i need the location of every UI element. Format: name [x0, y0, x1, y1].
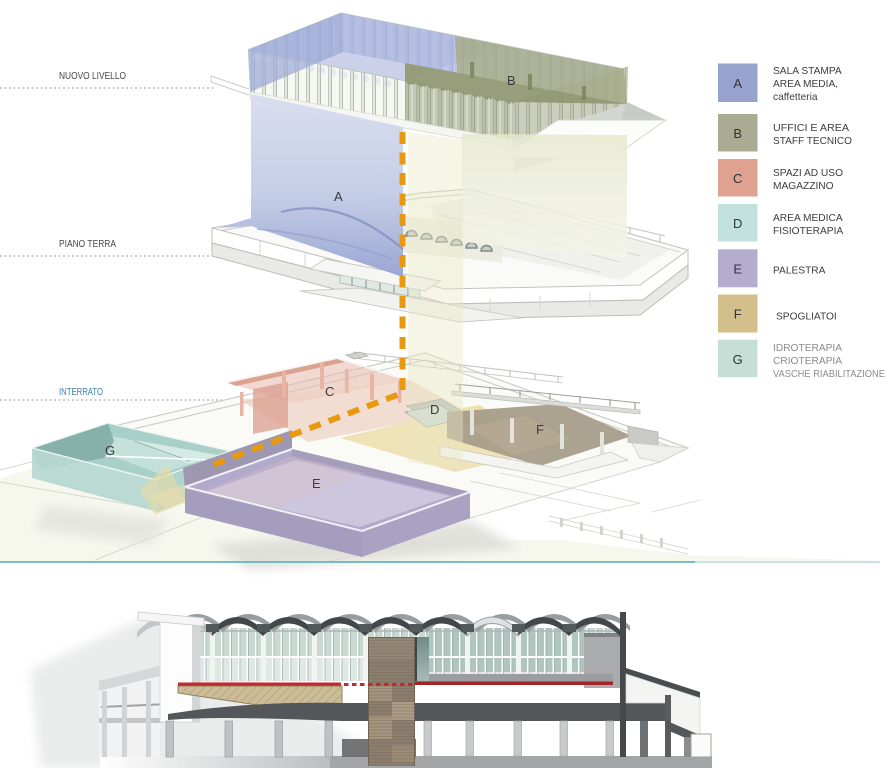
- svg-text:C: C: [325, 384, 334, 399]
- svg-text:D: D: [430, 402, 439, 417]
- svg-text:SPOGLIATOI: SPOGLIATOI: [776, 312, 837, 323]
- svg-text:E: E: [312, 476, 321, 491]
- svg-text:VASCHE RIABILITAZIONE: VASCHE RIABILITAZIONE: [773, 369, 885, 380]
- svg-text:AREA MEDICA: AREA MEDICA: [773, 213, 843, 224]
- svg-text:D: D: [733, 216, 742, 231]
- svg-text:PALESTRA: PALESTRA: [773, 266, 826, 277]
- svg-text:CRIOTERAPIA: CRIOTERAPIA: [773, 356, 842, 367]
- svg-text:AREA MEDIA,: AREA MEDIA,: [773, 79, 838, 90]
- svg-text:STAFF TECNICO: STAFF TECNICO: [773, 136, 852, 147]
- svg-text:F: F: [734, 307, 742, 322]
- svg-text:NUOVO LIVELLO: NUOVO LIVELLO: [59, 71, 126, 82]
- svg-text:B: B: [507, 73, 516, 88]
- svg-text:B: B: [733, 126, 742, 141]
- svg-text:F: F: [536, 422, 544, 437]
- svg-text:G: G: [733, 352, 743, 367]
- svg-text:PIANO TERRA: PIANO TERRA: [59, 239, 116, 250]
- svg-text:INTERRATO: INTERRATO: [59, 387, 103, 398]
- svg-text:C: C: [733, 171, 742, 186]
- svg-text:UFFICI E AREA: UFFICI E AREA: [773, 123, 849, 134]
- svg-text:A: A: [733, 76, 742, 91]
- svg-text:caffetteria: caffetteria: [773, 92, 818, 103]
- svg-text:SALA STAMPA: SALA STAMPA: [773, 66, 842, 77]
- svg-text:SPAZI AD USO: SPAZI AD USO: [773, 168, 843, 179]
- svg-text:G: G: [105, 443, 115, 458]
- svg-text:MAGAZZINO: MAGAZZINO: [773, 181, 834, 192]
- svg-text:FISIOTERAPIA: FISIOTERAPIA: [773, 226, 843, 237]
- svg-text:A: A: [334, 189, 343, 204]
- svg-text:E: E: [733, 262, 742, 277]
- svg-text:IDROTERAPIA: IDROTERAPIA: [773, 343, 842, 354]
